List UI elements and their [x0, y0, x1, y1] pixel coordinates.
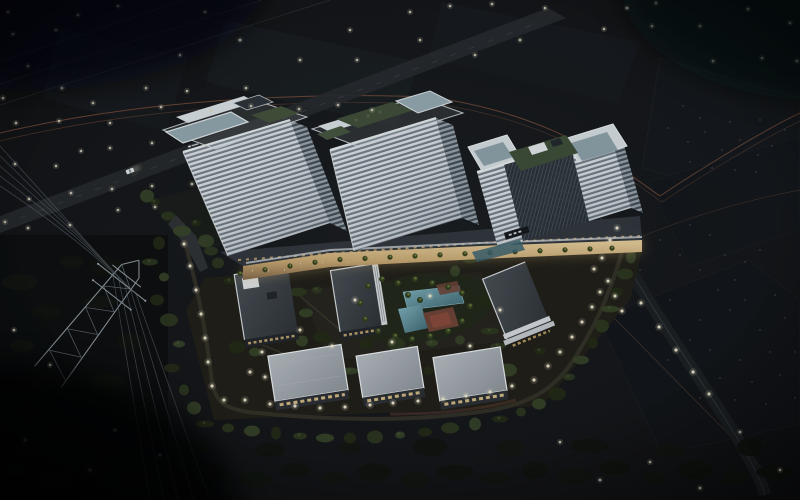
night-aerial-rendering: [0, 0, 800, 500]
rendering-viewport: [0, 0, 800, 500]
vignette: [0, 0, 800, 500]
